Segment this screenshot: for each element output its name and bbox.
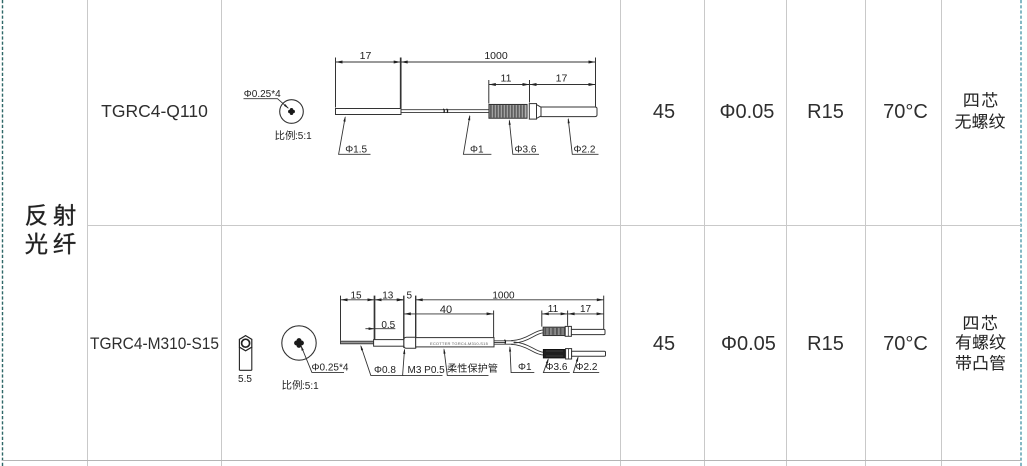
svg-text::5:1: :5:1: [295, 131, 312, 142]
svg-text:Φ2.2: Φ2.2: [574, 144, 596, 155]
svg-text:11: 11: [501, 73, 512, 85]
svg-text:Φ0.25*4: Φ0.25*4: [312, 362, 349, 373]
svg-text:45: 45: [653, 333, 675, 355]
svg-text:1000: 1000: [492, 291, 515, 302]
svg-text:Φ0.05: Φ0.05: [721, 333, 776, 355]
svg-text::5:1: :5:1: [302, 381, 319, 392]
svg-text:R15: R15: [807, 333, 844, 355]
svg-text:R15: R15: [807, 101, 844, 123]
svg-text:Φ0.05: Φ0.05: [720, 101, 775, 123]
svg-text:11: 11: [548, 304, 559, 315]
svg-text:Φ1: Φ1: [518, 362, 532, 373]
svg-text:40: 40: [440, 304, 452, 316]
svg-text:13: 13: [382, 291, 394, 302]
svg-text:Φ3.6: Φ3.6: [546, 362, 568, 373]
svg-text:Φ0.8: Φ0.8: [374, 365, 396, 376]
svg-text:15: 15: [350, 291, 362, 302]
svg-text:M3 P0.5: M3 P0.5: [408, 365, 446, 376]
svg-text:45: 45: [653, 101, 675, 123]
svg-text:70°C: 70°C: [883, 101, 928, 123]
svg-text:ECOTTER TGRC4-M310-S15: ECOTTER TGRC4-M310-S15: [430, 341, 489, 346]
svg-text:Φ2.2: Φ2.2: [576, 362, 598, 373]
svg-text:17: 17: [556, 73, 568, 85]
svg-text:1000: 1000: [484, 50, 508, 62]
svg-text:5: 5: [407, 291, 413, 302]
svg-text:Φ3.6: Φ3.6: [515, 144, 537, 155]
svg-text:17: 17: [360, 50, 372, 62]
svg-text:0.5: 0.5: [381, 320, 395, 331]
svg-text:TGRC4-M310-S15: TGRC4-M310-S15: [90, 335, 219, 353]
svg-text:TGRC4-Q110: TGRC4-Q110: [101, 101, 208, 121]
svg-text:70°C: 70°C: [883, 333, 928, 355]
svg-text:Φ1: Φ1: [470, 144, 484, 155]
svg-text:Φ1.5: Φ1.5: [345, 144, 367, 155]
svg-text:5.5: 5.5: [238, 374, 252, 385]
svg-text:17: 17: [580, 304, 592, 315]
